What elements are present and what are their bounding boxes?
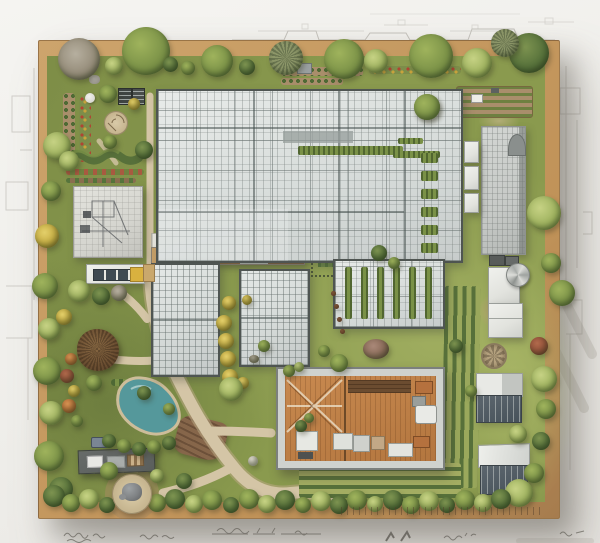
planting-column xyxy=(361,267,368,319)
planting-column xyxy=(377,267,384,319)
furniture-tan xyxy=(371,436,385,450)
shrub xyxy=(135,141,153,159)
small-house xyxy=(86,264,145,284)
shrub xyxy=(150,469,164,483)
shrub xyxy=(105,57,123,75)
palm-tree xyxy=(269,41,303,75)
flower-cluster xyxy=(337,317,342,322)
thatched-hut xyxy=(77,329,119,371)
shrub xyxy=(530,337,548,355)
window-band xyxy=(93,269,131,281)
interior-planting xyxy=(298,146,403,155)
shrub xyxy=(35,224,59,248)
hedge-bush xyxy=(185,495,203,513)
tree xyxy=(92,287,110,305)
hedge-bush xyxy=(132,442,146,456)
tree xyxy=(409,34,453,78)
hedge-bush xyxy=(275,490,295,510)
shrub xyxy=(304,413,314,423)
shrub xyxy=(99,85,117,103)
hedge-bush xyxy=(239,489,259,509)
spiral-garden xyxy=(481,343,507,369)
interior-planting xyxy=(398,138,423,144)
shrub xyxy=(222,296,236,310)
tall-building xyxy=(481,126,526,255)
flower-cluster xyxy=(334,304,339,309)
hedge-bush xyxy=(79,489,99,509)
model-photo xyxy=(0,0,600,543)
greenhouse-extension xyxy=(333,259,445,329)
paper-edge-mark xyxy=(516,538,594,543)
furniture-dark xyxy=(298,452,313,459)
shrub xyxy=(220,351,236,367)
tree xyxy=(462,48,492,78)
tree xyxy=(527,196,561,230)
machine-unit xyxy=(415,405,437,424)
shrub xyxy=(541,253,561,273)
house-a xyxy=(476,373,521,421)
roof-trusses xyxy=(285,376,344,436)
shrub xyxy=(465,385,477,397)
shrub xyxy=(65,353,77,365)
sketch-building xyxy=(73,186,143,258)
crate-orange xyxy=(415,381,433,394)
yellow-globe-tree xyxy=(128,98,140,110)
stored-goods xyxy=(127,454,144,467)
stone xyxy=(248,456,258,466)
shrub xyxy=(371,245,387,261)
house-a-glazing xyxy=(476,395,522,423)
shrub xyxy=(363,339,389,359)
bottom-edge-fence xyxy=(341,507,541,515)
model-board xyxy=(38,40,560,519)
hedge-bush xyxy=(258,495,276,513)
shrub xyxy=(318,345,330,357)
greenhouse-left xyxy=(151,263,220,377)
tree xyxy=(364,49,388,73)
shelving-band xyxy=(348,380,411,393)
hedge-bush xyxy=(202,490,222,510)
service-box xyxy=(464,141,479,163)
shrub xyxy=(68,385,80,397)
tree xyxy=(34,441,64,471)
tree xyxy=(33,357,61,385)
planting-tray xyxy=(421,225,438,235)
shrub xyxy=(62,399,76,413)
shrub xyxy=(100,462,118,480)
studio-building-lower xyxy=(488,303,523,338)
planting-tray xyxy=(421,243,438,253)
stone-circle xyxy=(112,474,152,514)
planting-tray xyxy=(421,189,438,199)
counter-white xyxy=(388,443,413,457)
roof-highlight xyxy=(158,209,288,261)
shrub xyxy=(216,315,232,331)
roof-sketch-marks xyxy=(74,187,142,257)
furniture-white xyxy=(296,431,318,451)
planting-tray xyxy=(421,153,438,163)
planting-column xyxy=(425,267,432,319)
shrub xyxy=(56,309,72,325)
shrub xyxy=(536,399,556,419)
shrub xyxy=(137,386,151,400)
shrub xyxy=(388,257,400,269)
tree xyxy=(509,425,527,443)
shrub xyxy=(532,432,550,450)
tree xyxy=(219,377,243,401)
furniture-gray xyxy=(353,435,370,452)
tree xyxy=(32,273,58,299)
flower-cluster xyxy=(340,329,345,334)
greenhouse-right xyxy=(239,269,310,367)
left-sketch-lines xyxy=(6,68,34,420)
shrub xyxy=(176,473,192,489)
roof-seam xyxy=(489,318,522,319)
yellow-panel xyxy=(130,267,144,282)
palm-tree xyxy=(491,29,519,57)
shrub xyxy=(242,295,252,305)
shrub xyxy=(449,339,463,353)
furniture-white xyxy=(333,433,353,450)
planting-tray xyxy=(421,207,438,217)
tree xyxy=(531,366,557,392)
hedge-bush xyxy=(162,436,176,450)
shrub xyxy=(60,369,74,383)
planting-tray xyxy=(421,171,438,181)
tree xyxy=(414,94,440,120)
tree xyxy=(58,38,100,80)
shrub xyxy=(239,59,255,75)
hedge-bush xyxy=(223,497,239,513)
shrub xyxy=(41,181,61,201)
hedge-bush xyxy=(117,439,131,453)
tree xyxy=(68,280,90,302)
planting-column xyxy=(345,267,352,319)
flower-cluster xyxy=(331,291,336,296)
planting-column xyxy=(393,267,400,319)
hedge-bush xyxy=(295,497,311,513)
service-box xyxy=(464,166,479,190)
outdoor-table xyxy=(489,255,505,266)
hedge-bush xyxy=(102,434,116,448)
rock xyxy=(249,355,259,363)
shrub xyxy=(524,463,544,483)
rock xyxy=(119,494,126,500)
tree xyxy=(201,45,233,77)
shrub xyxy=(71,415,83,427)
shrub xyxy=(103,135,117,149)
shrub xyxy=(258,340,270,352)
planting-column xyxy=(409,267,416,319)
table-orange xyxy=(413,436,430,448)
spiral-pavilion xyxy=(506,263,530,287)
house-annex xyxy=(143,264,155,282)
house-a-roof xyxy=(476,373,523,397)
hedge-bush xyxy=(62,494,80,512)
roof-shade-panel xyxy=(283,131,353,143)
shrub xyxy=(39,401,63,425)
open-roof-hall xyxy=(276,367,445,470)
shrub xyxy=(163,57,178,72)
hedge-bush xyxy=(165,489,185,509)
service-box xyxy=(464,193,479,213)
hedge-bush xyxy=(311,491,331,511)
shrub xyxy=(330,354,348,372)
shrub xyxy=(294,362,304,372)
shrub xyxy=(163,403,175,415)
handwritten-annotations xyxy=(64,528,584,543)
hedge-bush xyxy=(491,489,511,509)
tree xyxy=(111,285,127,301)
tree xyxy=(549,280,575,306)
tree xyxy=(59,151,79,171)
hedge-bush xyxy=(147,440,161,454)
shrub xyxy=(86,375,102,391)
tree xyxy=(324,39,364,79)
shrub xyxy=(181,61,195,75)
shrub xyxy=(218,333,234,349)
